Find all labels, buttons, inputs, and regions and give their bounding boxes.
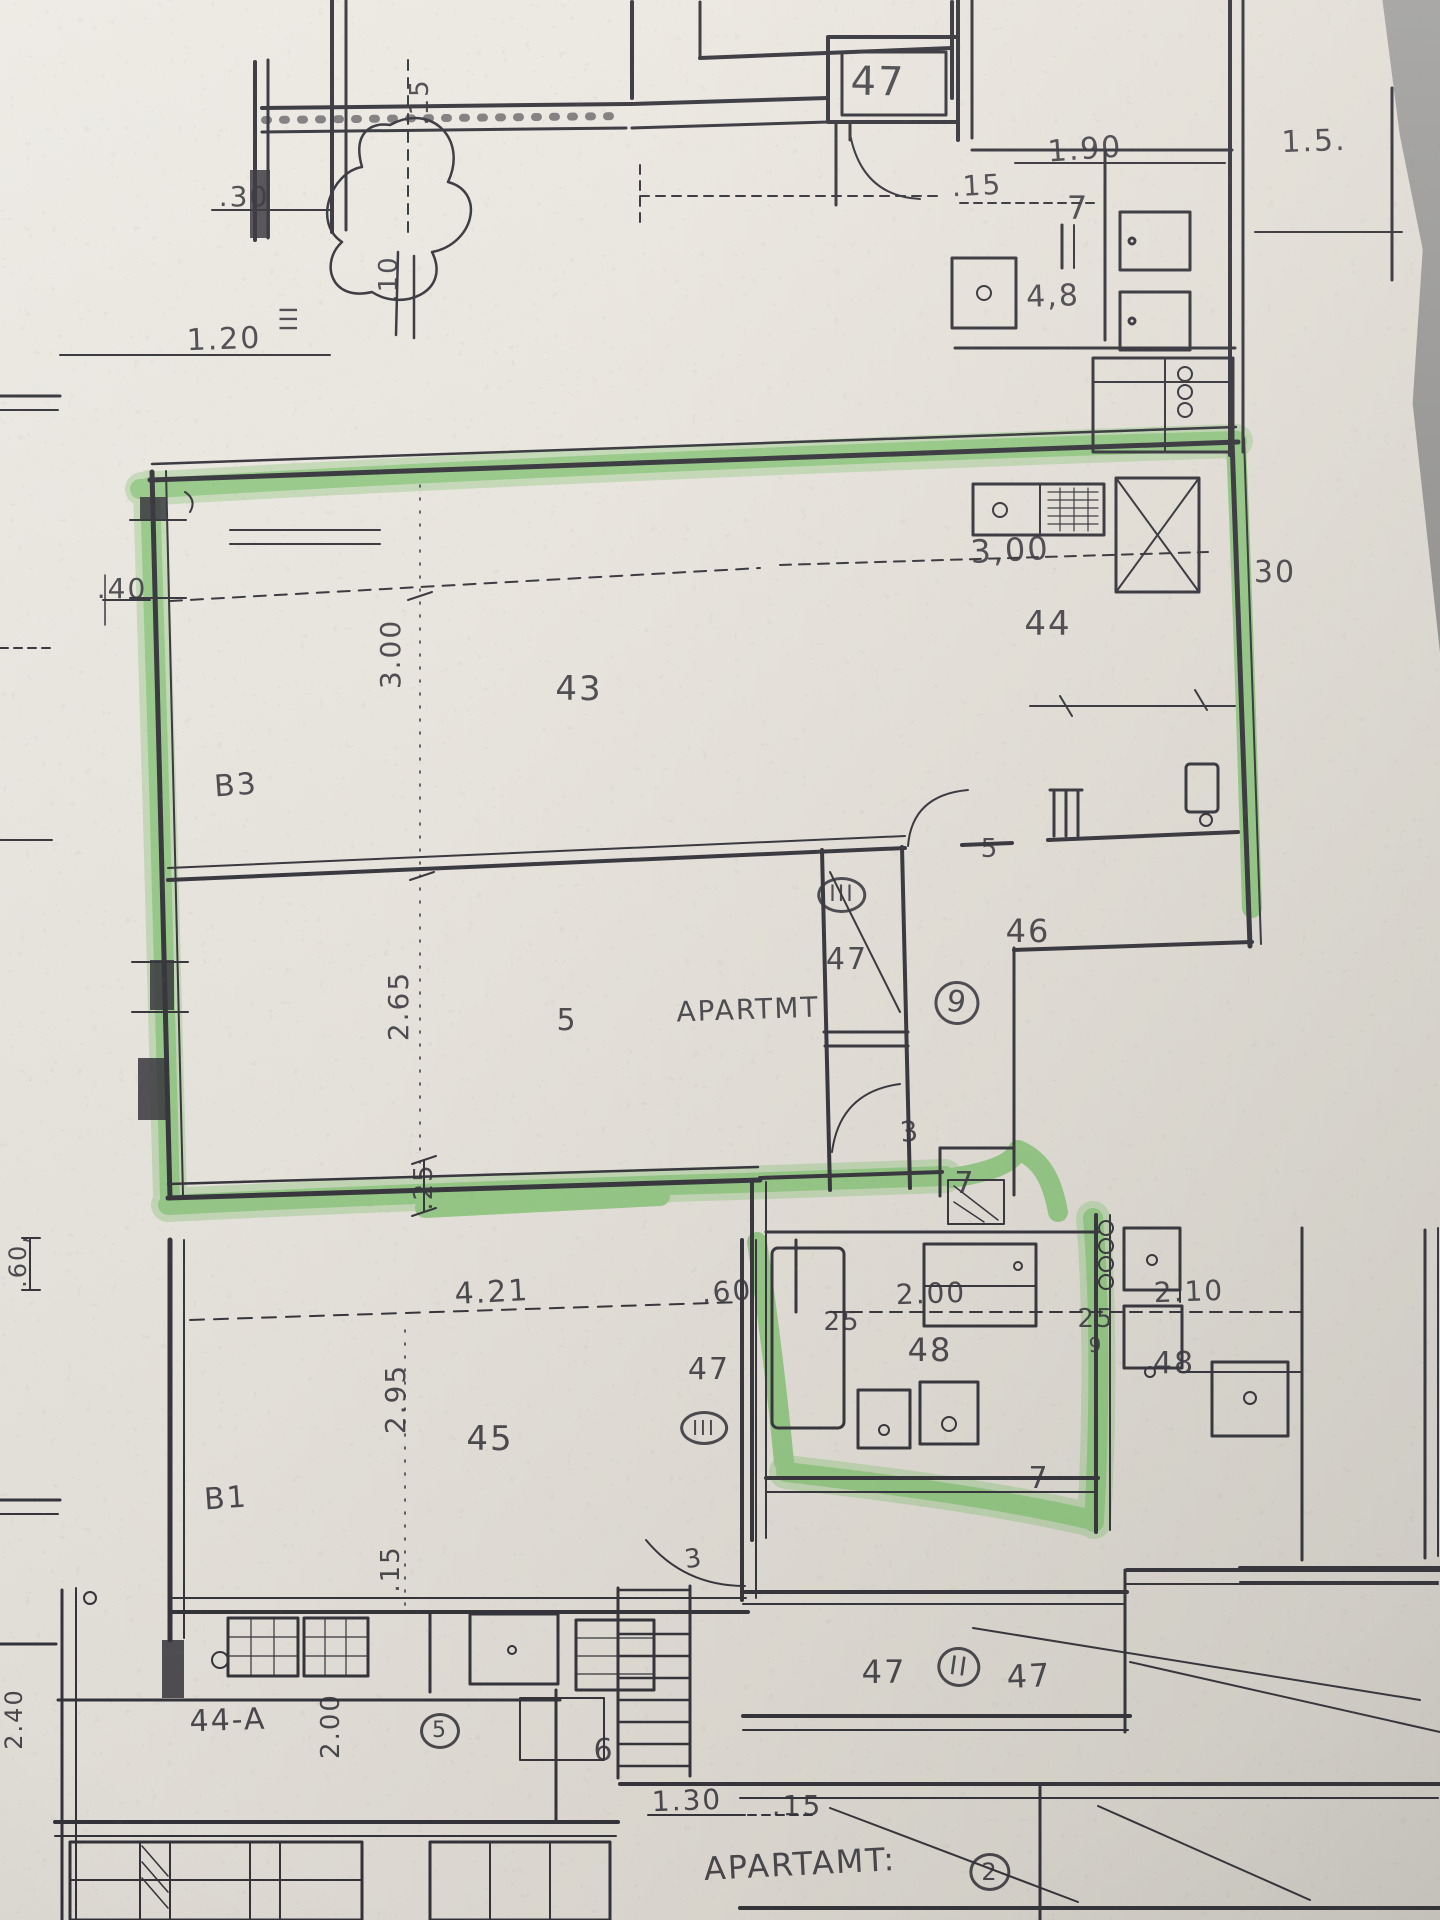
plan-label-45-41: 45: [466, 1422, 513, 1456]
plan-label-2-56: 2: [969, 1853, 1010, 1891]
plan-label-b3-17: B3: [213, 770, 259, 803]
plan-label-48-37: 48: [1153, 1349, 1195, 1379]
plan-label-130-53: 1.30: [651, 1786, 722, 1816]
plan-label-120-8: 1.20: [186, 324, 262, 357]
plan-label-300-15: 3.00: [377, 619, 405, 689]
plan-label-200-50: 2.00: [318, 1693, 344, 1759]
plan-label-15-7: .15: [407, 78, 433, 125]
plan-label-47-48: 47: [1006, 1659, 1052, 1693]
plan-label-47-38: 47: [688, 1355, 730, 1385]
plan-label-47-22: 47: [826, 945, 868, 975]
plan-label-200-32: 2.00: [895, 1279, 966, 1309]
plan-label-7-44: 7: [1028, 1464, 1049, 1494]
plan-label-b1-42: B1: [203, 1483, 249, 1516]
plan-label-30-12: 30: [1254, 558, 1296, 588]
plan-label-60-30: .60: [701, 1276, 753, 1307]
plan-label-46-20: 46: [1006, 915, 1051, 947]
plan-label-47-0: 47: [850, 62, 906, 103]
plan-label-9-36: 9: [1089, 1335, 1104, 1355]
plan-label-iii-39: III: [680, 1411, 728, 1445]
plan-label-240-58: 2.40: [2, 1688, 26, 1749]
plan-label-190-1: 1.90: [1047, 132, 1124, 167]
plan-label-421-29: 4.21: [454, 1276, 530, 1310]
labels-layer: 471.901.5..1574,8.30.151.20.10III3,00304…: [0, 0, 1440, 1920]
plan-label-25-34: 25: [1077, 1306, 1114, 1332]
plan-label-25-31: 25: [823, 1309, 860, 1335]
plan-label-44-13: 44: [1024, 607, 1071, 641]
plan-label-7-27: 7: [954, 1169, 975, 1199]
plan-label-5-23: 5: [556, 1006, 577, 1036]
plan-label-15-54: .15: [772, 1792, 823, 1820]
plan-label-210-35: 2.10: [1153, 1277, 1224, 1307]
plan-label-47-46: 47: [862, 1656, 907, 1688]
plan-label-3-45: 3: [683, 1545, 705, 1573]
plan-label-iii-10: III: [277, 304, 301, 331]
plan-label-43-16: 43: [555, 672, 602, 706]
plan-label-300-11: 3,00: [970, 532, 1051, 568]
plan-label-60-57: .60,: [6, 1234, 30, 1288]
plan-label-44a-49: 44-A: [189, 1705, 267, 1738]
plan-label-15-2: 1.5.: [1281, 126, 1347, 158]
plan-label-48-33: 48: [908, 1334, 953, 1366]
plan-label-iii-21: III: [817, 877, 866, 913]
plan-label-25-28: .25: [411, 1163, 437, 1210]
plan-label-15-3: .15: [951, 171, 1003, 202]
plan-label-7-4: 7: [1067, 192, 1089, 224]
plan-label-5-51: 5: [420, 1713, 460, 1749]
plan-label-265-18: 2.65: [385, 971, 413, 1041]
plan-label-9-25: 9: [931, 977, 983, 1028]
plan-label-3-26: 3: [899, 1117, 922, 1147]
plan-label-40-14: .40: [97, 575, 148, 603]
plan-label-6-52: 6: [593, 1736, 614, 1766]
plan-label-apartamt-55: APARTAMT:: [703, 1843, 897, 1885]
plan-label-30-6: .30: [219, 183, 270, 211]
plan-label-15-43: .15: [378, 1545, 404, 1592]
plan-label-ii-47: II: [935, 1644, 983, 1690]
plan-label-48-5: 4,8: [1026, 281, 1081, 313]
plan-label-295-40: 2.95: [382, 1364, 410, 1434]
plan-label-apartmt-24: APARTMT: [676, 994, 820, 1027]
floor-plan-photo: 471.901.5..1574,8.30.151.20.10III3,00304…: [0, 0, 1440, 1920]
plan-label-10-9: .10: [376, 255, 402, 302]
plan-label-5-19: 5: [981, 836, 1000, 862]
